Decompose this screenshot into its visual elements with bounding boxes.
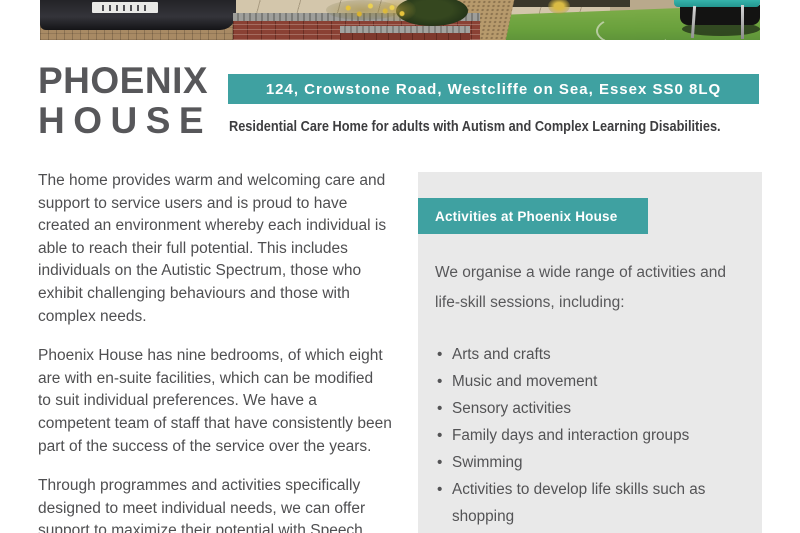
list-item: Family days and interaction groups [437, 422, 756, 449]
activities-panel-title: Activities at Phoenix House [418, 198, 648, 234]
phoenix-house-logo: PHOENIX HOUSE [38, 60, 212, 142]
text-line: to suit individual preferences. We have … [38, 390, 408, 413]
text-line: part of the success of the service over … [38, 436, 408, 459]
list-item: Activities to develop life skills such a… [437, 476, 756, 530]
text-line: competent team of staff that have consis… [38, 413, 408, 436]
activities-title-text: Activities at Phoenix House [435, 209, 617, 224]
activities-list: Arts and crafts Music and movement Senso… [418, 341, 762, 533]
body-text-column: The home provides warm and welcoming car… [38, 170, 408, 533]
text-line: created an environment whereby each indi… [38, 215, 408, 238]
text-line: The home provides warm and welcoming car… [38, 170, 408, 193]
text-line: Music and movement [452, 368, 756, 395]
text-line: complex needs. [38, 306, 408, 329]
text-line: support to maximize their potential with… [38, 520, 408, 533]
address-text: 124, Crowstone Road, Westcliffe on Sea, … [266, 81, 721, 98]
text-line: shopping [452, 503, 756, 530]
list-item: Arts and crafts [437, 341, 756, 368]
text-line: support to service users and is proud to… [38, 193, 408, 216]
tagline: Residential Care Home for adults with Au… [229, 119, 721, 135]
text-line: able to reach their full potential. This… [38, 238, 408, 261]
address-banner: 124, Crowstone Road, Westcliffe on Sea, … [228, 74, 759, 104]
paragraph-3: Through programmes and activities specif… [38, 475, 408, 533]
brick-wall-photo-shape [340, 33, 470, 40]
logo-word-phoenix: PHOENIX [38, 60, 212, 102]
paragraph-2: Phoenix House has nine bedrooms, of whic… [38, 345, 408, 458]
text-line: life-skill sessions, including: [435, 288, 752, 318]
front-garden-photo [40, 0, 760, 40]
text-line: Sensory activities [452, 395, 756, 422]
activities-intro: We organise a wide range of activities a… [435, 258, 752, 318]
license-plate-photo-shape [92, 2, 158, 13]
paragraph-1: The home provides warm and welcoming car… [38, 170, 408, 328]
text-line: exhibit challenging behaviours and those… [38, 283, 408, 306]
list-item: Swimming [437, 449, 756, 476]
flyer-page: PHOENIX HOUSE 124, Crowstone Road, Westc… [0, 0, 800, 533]
list-item: Music and movement [437, 368, 756, 395]
text-line: are with en-suite facilities, which can … [38, 368, 408, 391]
text-line: individuals on the Autistic Spectrum, th… [38, 260, 408, 283]
text-line: Family days and interaction groups [452, 422, 756, 449]
trampoline-leg-photo-shape [741, 5, 744, 39]
text-line: designed to meet individual needs, we ca… [38, 498, 408, 521]
activities-panel: Activities at Phoenix House We organise … [418, 172, 762, 533]
text-line: Through programmes and activities specif… [38, 475, 408, 498]
text-line: We organise a wide range of activities a… [435, 258, 752, 288]
list-item: Sensory activities [437, 395, 756, 422]
logo-word-house: HOUSE [38, 100, 212, 142]
trampoline-pad-photo-shape [674, 0, 760, 7]
text-line: Activities to develop life skills such a… [452, 476, 756, 503]
garden-hose-photo-shape [596, 14, 674, 40]
text-line: Swimming [452, 449, 756, 476]
text-line: Phoenix House has nine bedrooms, of whic… [38, 345, 408, 368]
text-line: Arts and crafts [452, 341, 756, 368]
